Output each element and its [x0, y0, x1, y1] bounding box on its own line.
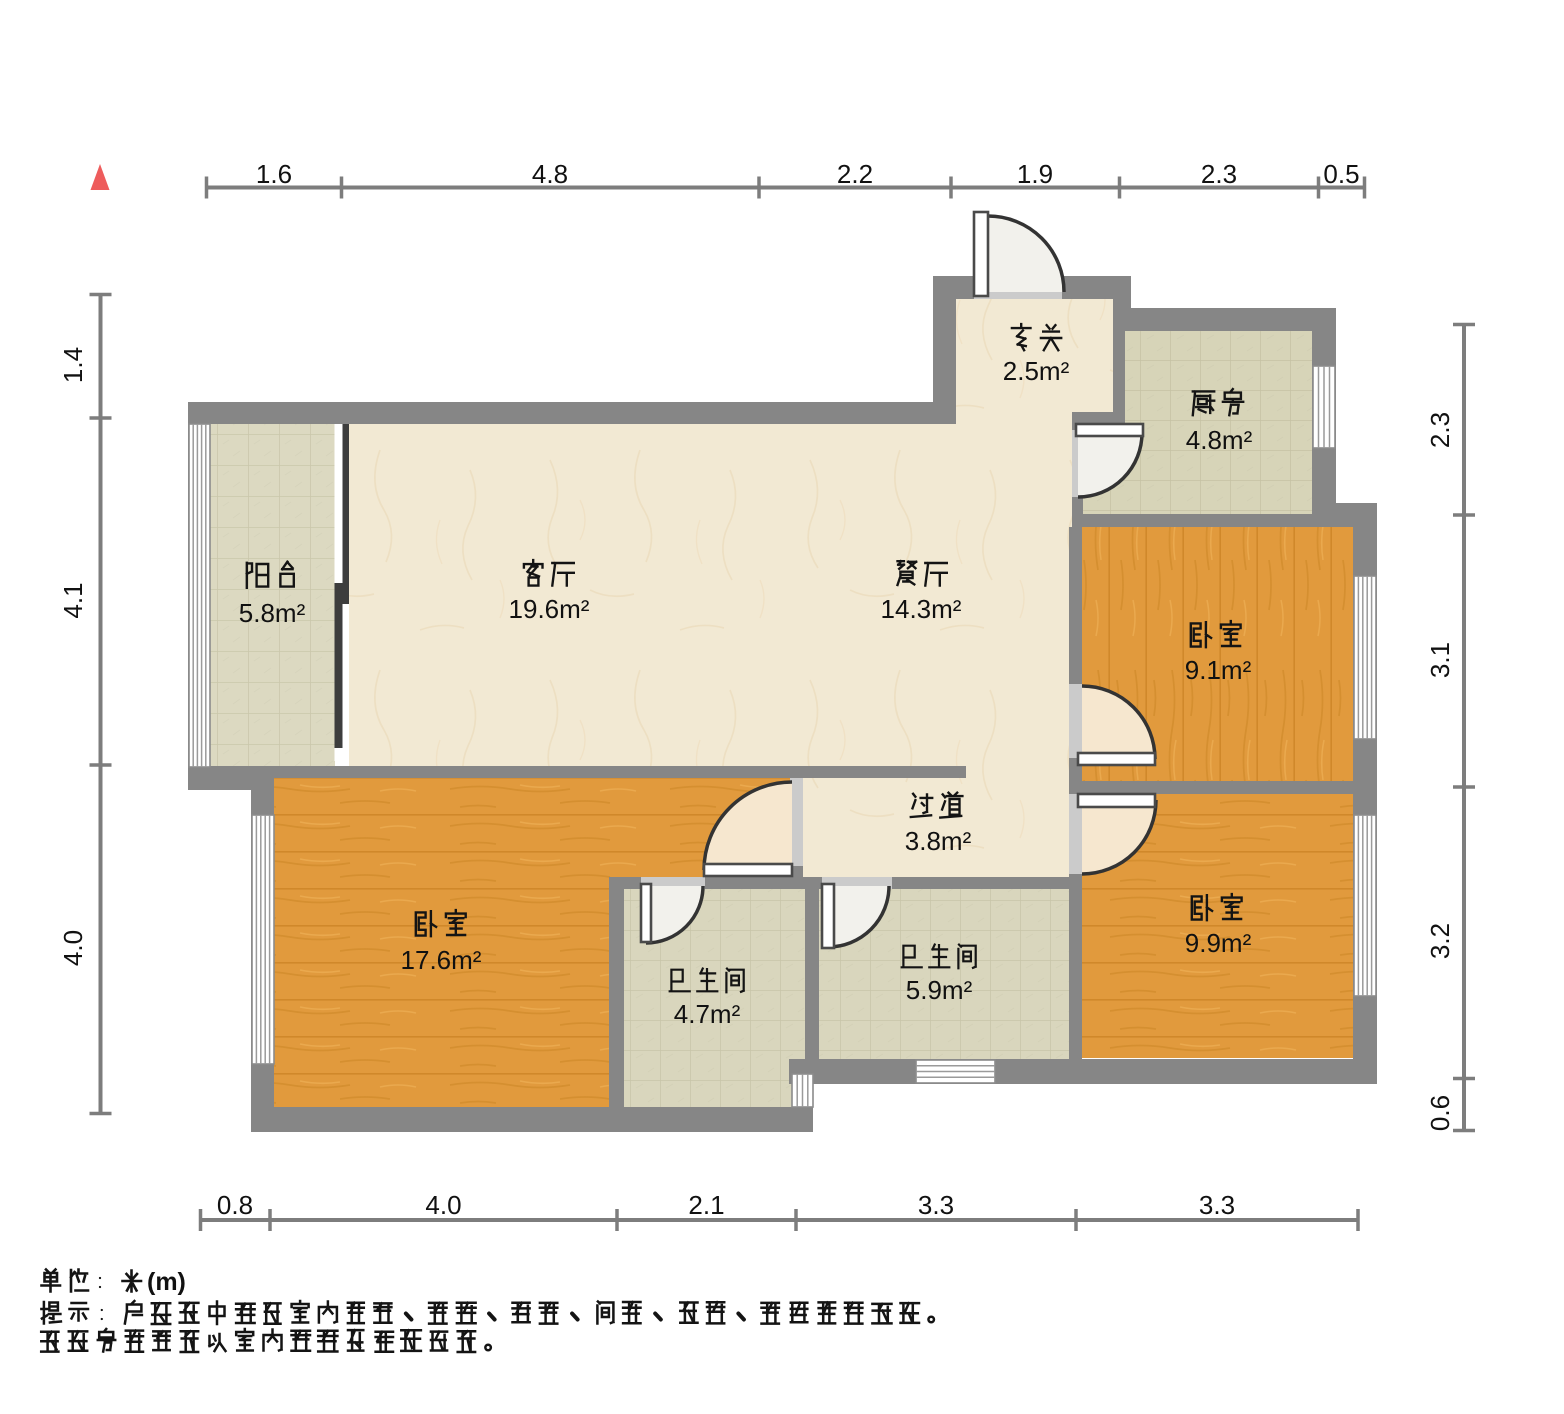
svg-text:4.8: 4.8: [532, 159, 568, 189]
svg-text:3.8m²: 3.8m²: [905, 826, 972, 856]
svg-text:2.5m²: 2.5m²: [1003, 356, 1070, 386]
svg-text:3.3: 3.3: [1199, 1190, 1235, 1220]
svg-text:4.1: 4.1: [58, 582, 88, 618]
svg-text:3.2: 3.2: [1425, 923, 1455, 959]
svg-text:2.3: 2.3: [1425, 412, 1455, 448]
svg-text:1.9: 1.9: [1017, 159, 1053, 189]
svg-text:4.0: 4.0: [58, 930, 88, 966]
svg-text:1.6: 1.6: [256, 159, 292, 189]
svg-text:0.5: 0.5: [1323, 159, 1359, 189]
svg-text:9.9m²: 9.9m²: [1185, 928, 1252, 958]
svg-text:5.9m²: 5.9m²: [906, 975, 973, 1005]
svg-text:14.3m²: 14.3m²: [881, 594, 962, 624]
svg-text:3.1: 3.1: [1425, 642, 1455, 678]
svg-text:2.2: 2.2: [837, 159, 873, 189]
svg-text:1.4: 1.4: [58, 347, 88, 383]
svg-text:2.1: 2.1: [688, 1190, 724, 1220]
svg-text:0.8: 0.8: [217, 1190, 253, 1220]
svg-text:3.3: 3.3: [918, 1190, 954, 1220]
svg-text:19.6m²: 19.6m²: [509, 594, 590, 624]
svg-text:(m): (m): [147, 1268, 186, 1296]
svg-text:5.8m²: 5.8m²: [239, 598, 306, 628]
svg-text:4.8m²: 4.8m²: [1186, 425, 1253, 455]
svg-text:9.1m²: 9.1m²: [1185, 655, 1252, 685]
svg-text:0.6: 0.6: [1425, 1095, 1455, 1131]
svg-text:2.3: 2.3: [1201, 159, 1237, 189]
svg-text:17.6m²: 17.6m²: [401, 945, 482, 975]
svg-text:4.0: 4.0: [425, 1190, 461, 1220]
svg-text:4.7m²: 4.7m²: [674, 999, 741, 1029]
